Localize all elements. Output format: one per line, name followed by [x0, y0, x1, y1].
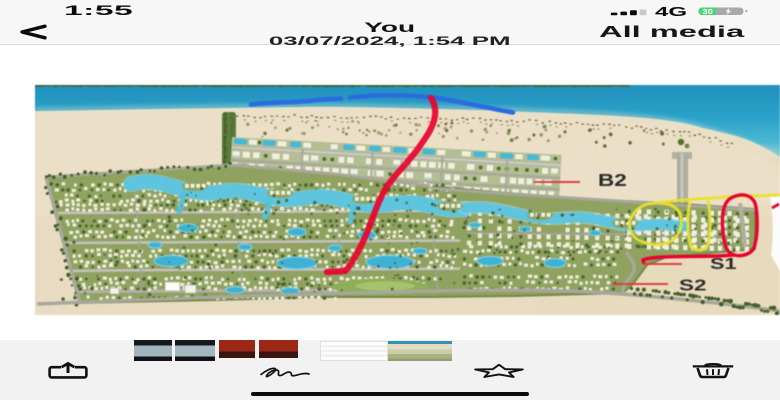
- svg-text:B2: B2: [598, 171, 627, 190]
- svg-text:30: 30: [702, 7, 713, 16]
- svg-text:S2: S2: [679, 278, 706, 295]
- svg-text:S1: S1: [710, 255, 737, 272]
